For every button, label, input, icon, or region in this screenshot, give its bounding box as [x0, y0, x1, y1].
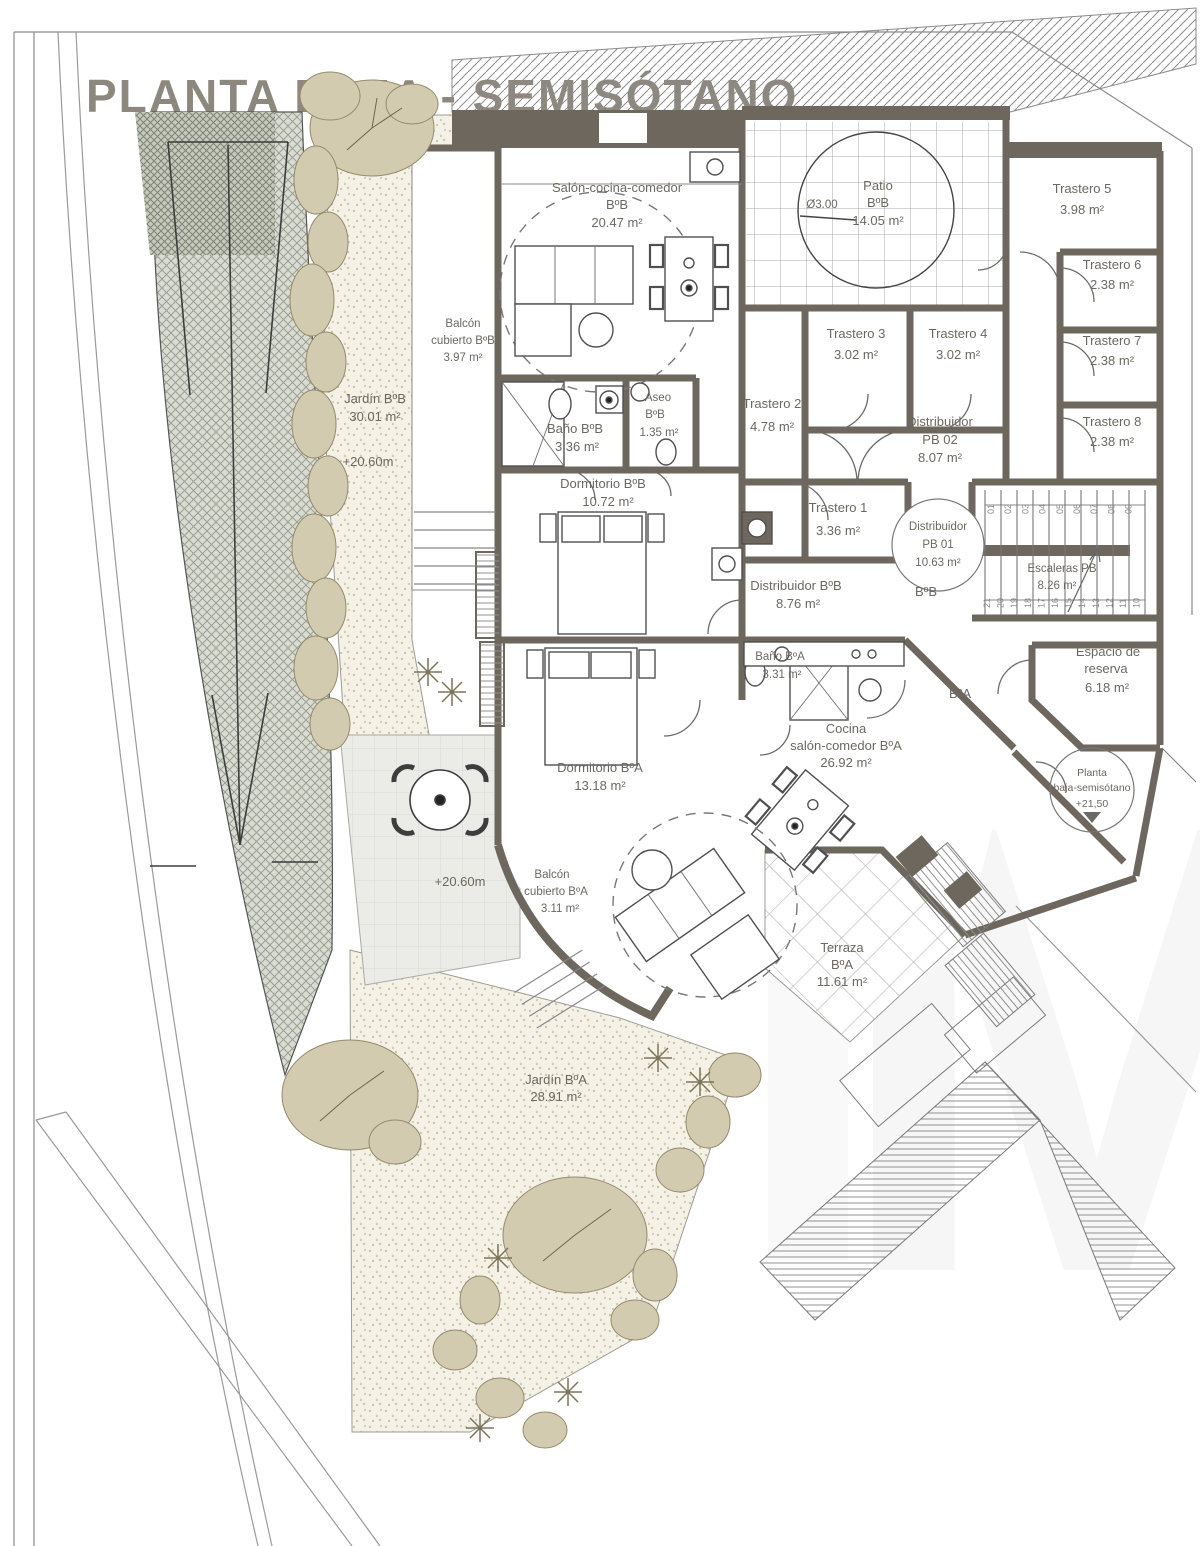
north-hatch-band [452, 8, 1196, 112]
label-aseo-l1: Aseo [645, 392, 671, 404]
label-dorm-ba-name: Dormitorio BºA [557, 760, 643, 775]
label-entry-level: +21,50 [1076, 798, 1109, 810]
stair-step-number: 13 [1091, 598, 1101, 608]
stair-step-number: 01 [986, 504, 996, 514]
label-espacio-area: 6.18 m² [1085, 680, 1130, 695]
label-trastero3-name: Trastero 3 [827, 326, 886, 341]
label-terraza-unit: BºA [831, 957, 853, 972]
stair-step-number: 06 [1072, 504, 1082, 514]
label-dorm-bb-name: Dormitorio BºB [560, 476, 646, 491]
label-cocina-l1: Cocina [826, 721, 867, 736]
stair-step-number: 11 [1118, 599, 1128, 608]
stair-step-number: 14 [1077, 598, 1087, 608]
stair-steps-top: 010203040506070809 [986, 504, 1134, 514]
stair-step-number: 20 [996, 598, 1006, 608]
label-jardin-ba-area: 28.91 m² [530, 1089, 582, 1104]
label-distpb02-area: 8.07 m² [918, 450, 963, 465]
stair-step-number: 04 [1038, 504, 1048, 514]
label-trastero5-name: Trastero 5 [1053, 181, 1112, 196]
label-distpb02-code: PB 02 [922, 432, 957, 447]
label-terraza-area: 11.61 m² [817, 974, 868, 989]
label-trastero2-area: 4.78 m² [750, 419, 795, 434]
label-distpb02-name: Distribuidor [907, 414, 973, 429]
label-trastero1-area: 3.36 m² [816, 523, 861, 538]
label-distpb01-name: Distribuidor [909, 521, 967, 533]
label-distpb01-area: 10.63 m² [915, 557, 961, 569]
label-cocina-area: 26.92 m² [820, 755, 872, 770]
driveway-ramp [135, 112, 332, 1075]
label-patio-name: Patio [863, 178, 893, 193]
label-patio-unit: BºB [867, 195, 889, 210]
label-trastero8-name: Trastero 8 [1083, 414, 1142, 429]
stair-step-number: 08 [1106, 504, 1116, 514]
label-trastero3-area: 3.02 m² [834, 347, 879, 362]
label-trastero7-area: 2.38 m² [1090, 353, 1135, 368]
label-distpb01-code: PB 01 [922, 539, 953, 551]
label-cocina-l2: salón-comedor BºA [790, 738, 902, 753]
stair-step-number: 05 [1055, 504, 1065, 514]
label-unit-bb: BºB [915, 584, 937, 599]
label-bano-bb-name: Baño BºB [547, 421, 603, 436]
label-balcon-ba-area: 3.11 m² [541, 903, 579, 915]
label-trastero4-name: Trastero 4 [929, 326, 988, 341]
label-jardin-bb-level: +20.60m [343, 454, 394, 469]
label-patio-area: 14.05 m² [852, 213, 904, 228]
label-jardin-ba-name: Jardín BºA [525, 1072, 587, 1087]
label-bano-ba-area: 3.31 m² [763, 669, 802, 681]
label-balcon-ba-l1: Balcón [534, 869, 569, 881]
floor-plan-canvas: M PLANTA BAJA - SEMISÓTANO [0, 0, 1200, 1546]
label-balcon-ba-l2: cubierto BºA [524, 886, 588, 898]
label-trastero7-name: Trastero 7 [1083, 333, 1142, 348]
label-bano-ba-name: Baño BºA [755, 651, 805, 663]
label-entry-l1: Planta [1077, 767, 1107, 779]
label-dorm-bb-area: 10.72 m² [582, 494, 634, 509]
stair-step-number: 12 [1104, 598, 1114, 608]
label-aseo-l2: BºB [645, 409, 665, 421]
label-balcon-bb-area: 3.97 m² [444, 352, 483, 364]
label-bano-bb-area: 3.36 m² [555, 439, 600, 454]
stair-step-number: 15 [1064, 598, 1074, 608]
stair-step-number: 03 [1020, 504, 1030, 514]
label-jardin-bb-area: 30.01 m² [349, 409, 401, 424]
label-trastero5-area: 3.98 m² [1060, 202, 1105, 217]
stair-step-number: 07 [1089, 504, 1099, 514]
label-trastero1-name: Trastero 1 [809, 500, 868, 515]
label-aseo-area: 1.35 m² [640, 427, 679, 439]
floor-plan-page: M PLANTA BAJA - SEMISÓTANO [0, 0, 1200, 1546]
label-salon-bb-area: 20.47 m² [591, 215, 643, 230]
stair-step-number: 17 [1036, 598, 1046, 608]
label-escaleras-name: Escaleras PB [1027, 563, 1096, 575]
paved-terrace [340, 735, 520, 985]
stair-step-number: 10 [1132, 598, 1142, 608]
label-dorm-ba-area: 13.18 m² [574, 778, 626, 793]
stair-step-number: 21 [982, 598, 992, 608]
stair-step-number: 18 [1023, 598, 1033, 608]
label-escaleras-area: 8.26 m² [1038, 580, 1077, 592]
label-salon-bb-unit: BºB [606, 197, 628, 212]
label-espacio-l1: Espacio de [1076, 644, 1140, 659]
label-jardin-bb-name: Jardín BºB [344, 391, 406, 406]
stair-step-number: 16 [1050, 598, 1060, 608]
label-dist-bb-name: Distribuidor BºB [750, 578, 841, 593]
label-trastero6-area: 2.38 m² [1090, 277, 1135, 292]
label-dist-bb-area: 8.76 m² [776, 596, 821, 611]
label-salon-bb-name: Salón-cocina-comedor [552, 180, 683, 195]
label-balcon-bb-l2: cubierto BºB [431, 335, 495, 347]
label-trastero2-name: Trastero 2 [743, 396, 802, 411]
label-unit-ba: BºA [949, 686, 971, 701]
label-trastero8-area: 2.38 m² [1090, 434, 1135, 449]
label-terrace-level: +20.60m [435, 874, 486, 889]
stair-step-number: 02 [1003, 504, 1013, 514]
label-trastero6-name: Trastero 6 [1083, 257, 1142, 272]
stair-step-number: 19 [1009, 598, 1019, 608]
stair-step-number: 09 [1124, 504, 1134, 514]
label-trastero4-area: 3.02 m² [936, 347, 981, 362]
label-terraza-name: Terraza [820, 940, 864, 955]
label-balcon-bb-l1: Balcón [445, 318, 480, 330]
label-patio-diameter: Ø3.00 [806, 199, 837, 211]
label-entry-l2: baja-semisótano [1053, 782, 1130, 794]
label-espacio-l2: reserva [1084, 661, 1128, 676]
